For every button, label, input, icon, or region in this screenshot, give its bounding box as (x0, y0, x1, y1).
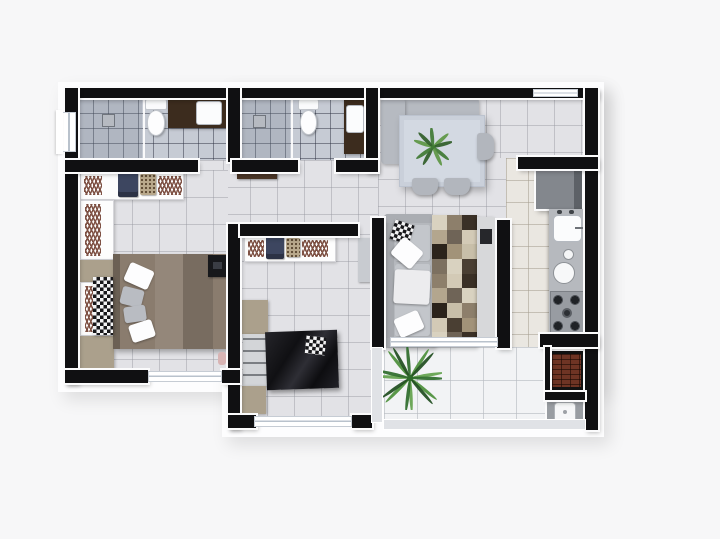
rug-cell (432, 230, 447, 245)
rug-cell (462, 230, 477, 245)
living-sofa (384, 214, 434, 347)
master-tv (208, 255, 228, 277)
patterned-shirt-icon (286, 238, 300, 257)
window-bathroom-1 (62, 112, 76, 152)
bedroom2-cabinet-lower (242, 386, 266, 414)
slippers (218, 352, 226, 365)
bedroom2-single-bed (265, 330, 339, 390)
rug-cell (432, 215, 447, 230)
rug-cell (447, 303, 462, 318)
wall-under-bath2-left (232, 160, 298, 172)
rug-cell (447, 259, 462, 274)
wall-under-bath2-right (336, 160, 378, 172)
rug-cell (462, 215, 477, 230)
rug-cell (432, 259, 447, 274)
rug-cell (462, 303, 477, 318)
wall-top (65, 88, 598, 98)
cooktop (550, 291, 584, 337)
rug-cell (462, 274, 477, 289)
living-tv (480, 229, 492, 244)
hanger-icon (84, 176, 102, 195)
rug-cell (432, 303, 447, 318)
bathroom-2-door-leaf (237, 172, 277, 179)
rug-cell (462, 318, 477, 333)
window-top-kitchen (533, 89, 578, 97)
wall-service-top (540, 334, 598, 347)
laundry-drain (563, 410, 567, 414)
burner-icon (553, 295, 563, 305)
window-bedroom-2 (254, 416, 352, 427)
bathroom-1-drain (102, 114, 115, 127)
faucet-icon (575, 227, 583, 229)
glass-door-living-balcony (390, 337, 498, 347)
burner-icon (570, 295, 580, 305)
wall-living-kitchen (497, 220, 510, 348)
bathroom-2-shower-glass (291, 98, 293, 162)
wall-bedroom2-bottom-left (228, 415, 256, 428)
rug-cell (462, 244, 477, 259)
small-bowl (563, 249, 574, 260)
tv-screen-glint (213, 262, 222, 269)
kitchen-sink (553, 215, 582, 242)
wall-right (585, 88, 598, 430)
cooktop-dial (562, 308, 572, 318)
wall-kitchen-stub (518, 157, 598, 169)
dining-chair (444, 178, 470, 195)
bedroom2-door-leaf (358, 238, 370, 282)
wall-bedroom2-balcony (372, 348, 382, 422)
window-sill (56, 110, 63, 154)
dining-plant (414, 128, 452, 166)
rug-cell (447, 274, 462, 289)
wall-bedroom2-top (240, 224, 358, 236)
rug-cell (432, 288, 447, 303)
master-bed-bench (93, 277, 113, 335)
burner-icon (553, 321, 563, 331)
bedroom2-cabinet-upper (242, 300, 268, 334)
rug-cell (432, 274, 447, 289)
barbecue-grill (549, 351, 584, 390)
refrigerator-side (574, 166, 582, 209)
wall-bedroom2-right (372, 218, 384, 348)
window-master-bedroom (148, 371, 222, 382)
counter-knob (557, 210, 562, 214)
wall-under-bath1 (65, 160, 198, 172)
bathroom-2-toilet-tank (298, 99, 319, 110)
refrigerator (536, 166, 582, 209)
dining-chair (477, 133, 494, 160)
large-bowl (553, 262, 575, 284)
wall-bedroom2-bottom-right (352, 415, 372, 428)
bathroom-2-toilet-bowl (300, 110, 317, 135)
burner-icon (570, 321, 580, 331)
white-throw-blanket (393, 269, 431, 305)
bathroom-1-shower (80, 98, 142, 162)
bathroom-1-toilet-bowl (147, 110, 165, 136)
counter-knob (569, 210, 574, 214)
rug-cell (447, 288, 462, 303)
hanger-icon (85, 204, 101, 256)
hanger-icon (302, 240, 328, 257)
bathroom-2-sink (346, 105, 364, 133)
wall-master-bottom-right (222, 370, 240, 383)
wall-master-right (228, 224, 240, 428)
checkered-pillow (305, 336, 327, 356)
dining-east-floor (500, 98, 590, 158)
bathroom-1-sink (196, 101, 222, 125)
master-dresser-lower (80, 336, 114, 372)
folded-shirt-icon (266, 236, 284, 259)
folded-shirt-icon (118, 172, 138, 197)
rug-cell (447, 244, 462, 259)
rug-cell (432, 318, 447, 333)
living-rug (432, 215, 477, 347)
bathroom-2-shower (242, 98, 290, 162)
balcony-plant (378, 346, 442, 410)
patterned-shirt-icon (140, 174, 156, 195)
bed-sheet-fold (155, 254, 183, 349)
wall-service-mid (545, 392, 585, 400)
hanger-icon (248, 240, 264, 257)
rug-cell (432, 244, 447, 259)
wall-master-bottom-left (65, 370, 148, 383)
rug-cell (447, 215, 462, 230)
rug-cell (462, 259, 477, 274)
sofa-armrest (384, 214, 434, 223)
bathroom-1-toilet-tank (145, 99, 167, 110)
balcony-railing (384, 420, 585, 429)
rug-cell (462, 288, 477, 303)
rug-cell (447, 318, 462, 333)
hanger-icon (158, 176, 182, 195)
wall-service-left (545, 347, 550, 393)
floor-plan (0, 0, 720, 539)
rug-cell (447, 230, 462, 245)
dining-chair (412, 178, 438, 195)
bathroom-2-drain (253, 115, 266, 128)
wall-bath-divider (228, 88, 240, 162)
